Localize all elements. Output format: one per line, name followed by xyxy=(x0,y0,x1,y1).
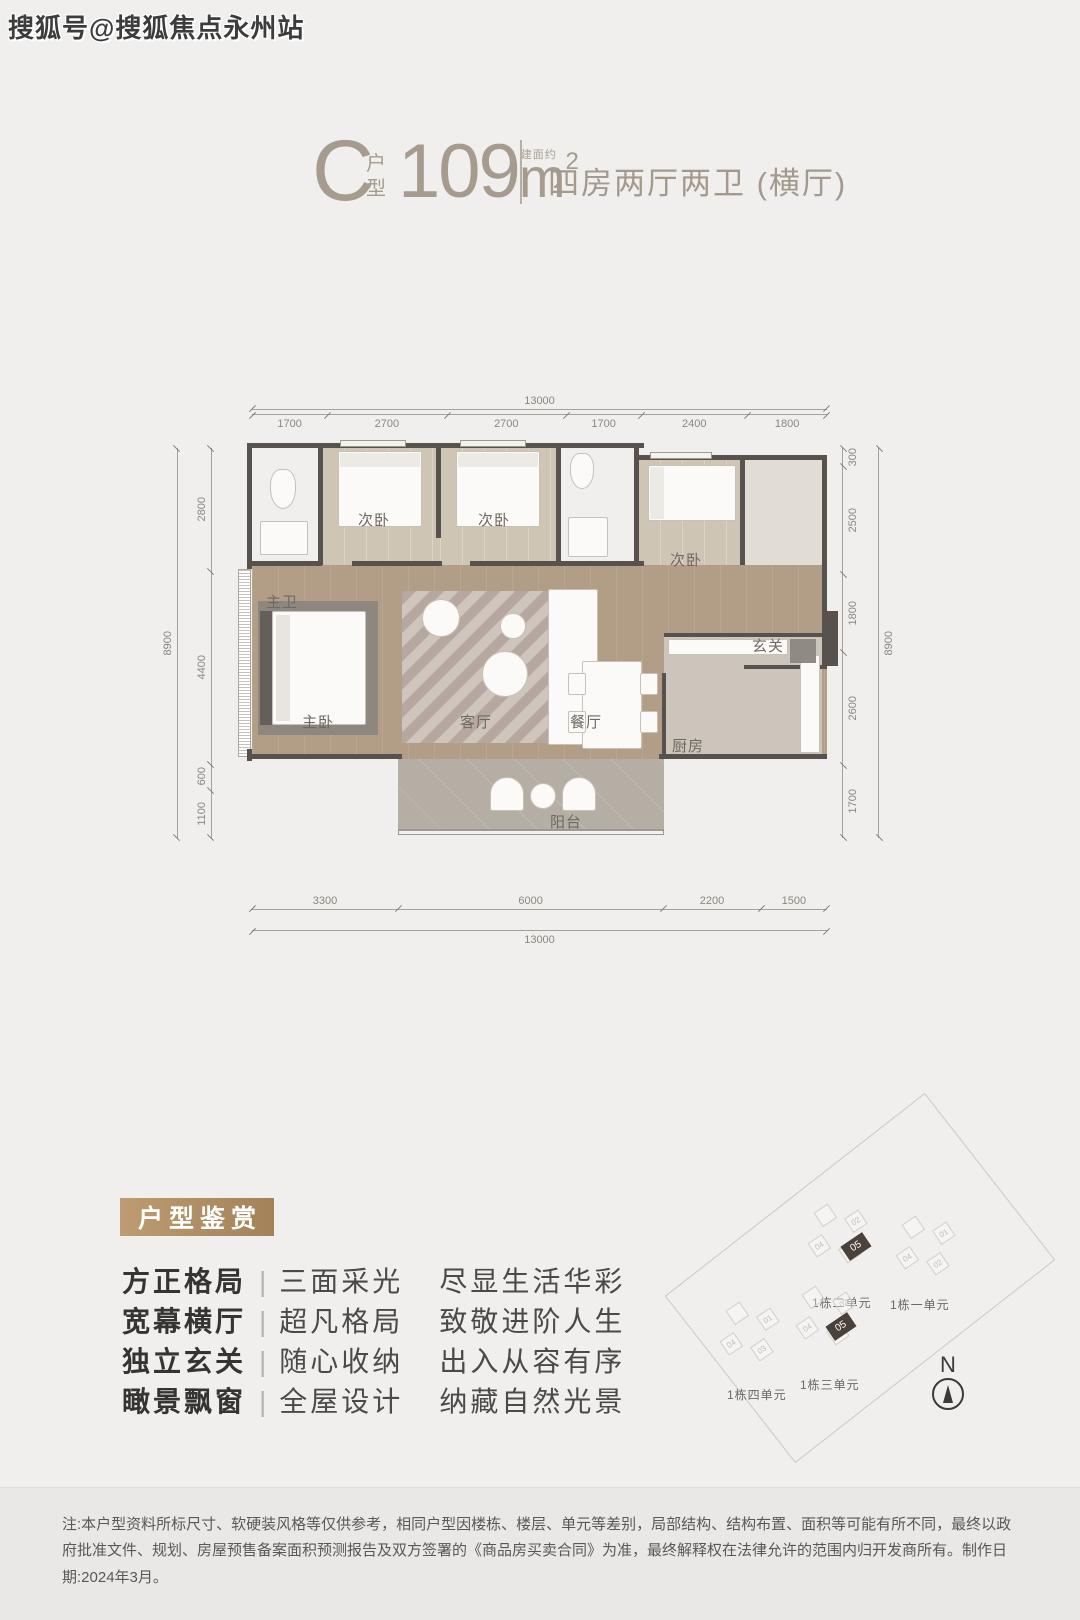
dim-value: 3300 xyxy=(313,895,337,907)
window xyxy=(650,452,712,459)
bed-pillow xyxy=(276,615,290,721)
window xyxy=(340,440,406,447)
feature-desc: 尽显生活华彩 xyxy=(439,1260,625,1300)
dim-value: 1700 xyxy=(277,418,301,430)
dim-value: 2800 xyxy=(196,497,208,521)
wall xyxy=(662,673,666,759)
compass-needle xyxy=(943,1385,953,1403)
feature-divider: | xyxy=(259,1346,266,1378)
feature-desc: 出入从容有序 xyxy=(439,1340,625,1380)
balcony-table xyxy=(530,783,556,809)
feature-desc: 致敬进阶人生 xyxy=(439,1300,625,1340)
cluster-label: 1栋四单元 xyxy=(727,1386,787,1403)
feature-divider: | xyxy=(259,1386,266,1418)
dim-value: 13000 xyxy=(524,395,555,407)
dim-value: 1800 xyxy=(775,418,799,430)
dim-bottom-total: 13000 xyxy=(252,930,827,954)
cluster-label: 1栋一单元 xyxy=(890,1296,950,1313)
disclaimer-note: 注:本户型资料所标尺寸、软硬装风格等仅供参考，相同户型因楼栋、楼层、单元等差别，… xyxy=(62,1512,1020,1591)
dim-right-total: 8900 xyxy=(878,448,898,838)
watermark: 搜狐号@搜狐焦点永州站 xyxy=(8,8,304,45)
dim-value: 300 xyxy=(847,448,859,466)
wall xyxy=(247,443,644,448)
kitchen-counter xyxy=(800,655,820,753)
feature-divider: | xyxy=(259,1306,266,1338)
feature-title: 瞰景飘窗 xyxy=(122,1380,246,1420)
dining-chair xyxy=(640,711,658,733)
bed-pillow xyxy=(340,453,420,467)
feature-divider: | xyxy=(259,1266,266,1298)
wall xyxy=(560,561,644,566)
dim-value: 1500 xyxy=(782,895,806,907)
dining-table xyxy=(582,661,642,749)
balcony-chair xyxy=(490,777,524,811)
floor-plan: 主卫 次卧 次卧 次卧 玄关 主卧 客厅 餐厅 厨房 阳台 xyxy=(252,443,827,838)
bed-headboard xyxy=(260,611,272,725)
dim-value: 13000 xyxy=(524,934,555,946)
wall xyxy=(634,443,639,565)
dim-value: 2600 xyxy=(847,696,859,720)
unit-type-label-top: 户 xyxy=(366,152,387,177)
unit-type-label: 户 型 xyxy=(366,152,387,202)
armchair xyxy=(422,599,460,637)
bed-pillow xyxy=(458,453,538,467)
window xyxy=(460,440,526,447)
wall xyxy=(436,443,441,538)
wall xyxy=(318,443,323,565)
dim-bottom-segments: 3300 6000 2200 1500 xyxy=(252,886,827,910)
wall xyxy=(252,561,322,566)
room-label-master-bedroom: 主卧 xyxy=(302,711,334,732)
dim-value: 8900 xyxy=(883,631,895,655)
wall xyxy=(664,633,824,637)
feature-middle: 随心收纳 xyxy=(279,1340,403,1380)
dim-value: 1100 xyxy=(196,802,208,826)
dim-value: 1700 xyxy=(847,789,859,813)
dim-left-total: 8900 xyxy=(158,448,178,838)
layout-description: 四房两厅两卫 (横厅) xyxy=(548,158,847,203)
wall xyxy=(822,455,827,615)
room-label-bedroom-c: 次卧 xyxy=(670,549,702,570)
feature-row: 独立玄关 | 随心收纳 出入从容有序 xyxy=(122,1340,625,1380)
bathtub xyxy=(260,521,308,555)
dim-value: 4400 xyxy=(196,655,208,679)
header-divider xyxy=(520,140,522,204)
wall xyxy=(247,443,252,569)
feature-title: 独立玄关 xyxy=(122,1340,246,1380)
area-value: 109 xyxy=(398,129,519,214)
poster-page: 搜狐号@搜狐焦点永州站 C 户 型 109建面约m2 四房两厅两卫 (横厅) 1… xyxy=(0,0,1080,1620)
wall xyxy=(247,754,402,759)
room-label-bedroom-b: 次卧 xyxy=(478,509,510,530)
wall xyxy=(470,561,560,566)
dim-top-total: 13000 xyxy=(252,388,827,410)
room-label-dining: 餐厅 xyxy=(570,711,602,732)
dim-value: 1700 xyxy=(591,418,615,430)
dim-right-segments: 300 2500 1800 2600 1700 xyxy=(842,448,862,838)
feature-middle: 超凡格局 xyxy=(279,1300,403,1340)
feature-middle: 三面采光 xyxy=(279,1260,403,1300)
wall-stub xyxy=(822,611,838,666)
room-label-bedroom-a: 次卧 xyxy=(358,509,390,530)
side-table xyxy=(500,613,526,639)
cluster-label: 1栋三单元 xyxy=(800,1376,860,1393)
shower xyxy=(568,517,608,557)
toilet xyxy=(570,453,594,489)
dining-chair xyxy=(568,673,586,695)
dim-value: 2200 xyxy=(700,895,724,907)
room-label-balcony: 阳台 xyxy=(550,811,582,832)
bay-window xyxy=(238,569,251,757)
feature-middle: 全屋设计 xyxy=(279,1380,403,1420)
room-label-master-bath: 主卫 xyxy=(266,591,298,612)
appreciation-badge: 户型鉴赏 xyxy=(120,1198,274,1236)
wall xyxy=(352,561,442,566)
balcony-chair xyxy=(562,777,596,811)
bed-pillow xyxy=(650,467,664,519)
dim-value: 2500 xyxy=(847,508,859,532)
dim-value: 600 xyxy=(196,767,208,785)
closet-area xyxy=(744,455,822,565)
wall xyxy=(740,455,745,565)
dim-value: 2700 xyxy=(494,418,518,430)
compass-icon xyxy=(932,1378,964,1410)
coffee-table xyxy=(482,651,528,697)
dim-top-segments: 1700 2700 2700 1700 2400 1800 xyxy=(252,414,827,436)
balcony-glass xyxy=(398,829,664,835)
feature-row: 瞰景飘窗 | 全屋设计 纳藏自然光景 xyxy=(122,1380,625,1420)
fridge xyxy=(790,639,816,663)
dim-value: 6000 xyxy=(518,895,542,907)
feature-title: 方正格局 xyxy=(122,1260,246,1300)
unit-type-letter: C xyxy=(312,128,374,214)
unit-type-label-bottom: 型 xyxy=(366,177,387,202)
dim-left-segments: 2800 4400 600 1100 xyxy=(192,448,212,838)
wall xyxy=(556,443,561,565)
dim-value: 2400 xyxy=(682,418,706,430)
toilet xyxy=(270,469,296,509)
room-label-kitchen: 厨房 xyxy=(672,735,704,756)
dining-chair xyxy=(640,673,658,695)
room-label-living: 客厅 xyxy=(460,711,492,732)
dim-value: 2700 xyxy=(375,418,399,430)
room-label-foyer: 玄关 xyxy=(752,635,784,656)
feature-desc: 纳藏自然光景 xyxy=(439,1380,625,1420)
feature-row: 方正格局 | 三面采光 尽显生活华彩 xyxy=(122,1260,625,1300)
feature-row: 宽幕横厅 | 超凡格局 致敬进阶人生 xyxy=(122,1300,625,1340)
dim-value: 8900 xyxy=(162,631,174,655)
dim-value: 1800 xyxy=(847,601,859,625)
feature-title: 宽幕横厅 xyxy=(122,1300,246,1340)
compass-north-label: N xyxy=(940,1352,956,1378)
